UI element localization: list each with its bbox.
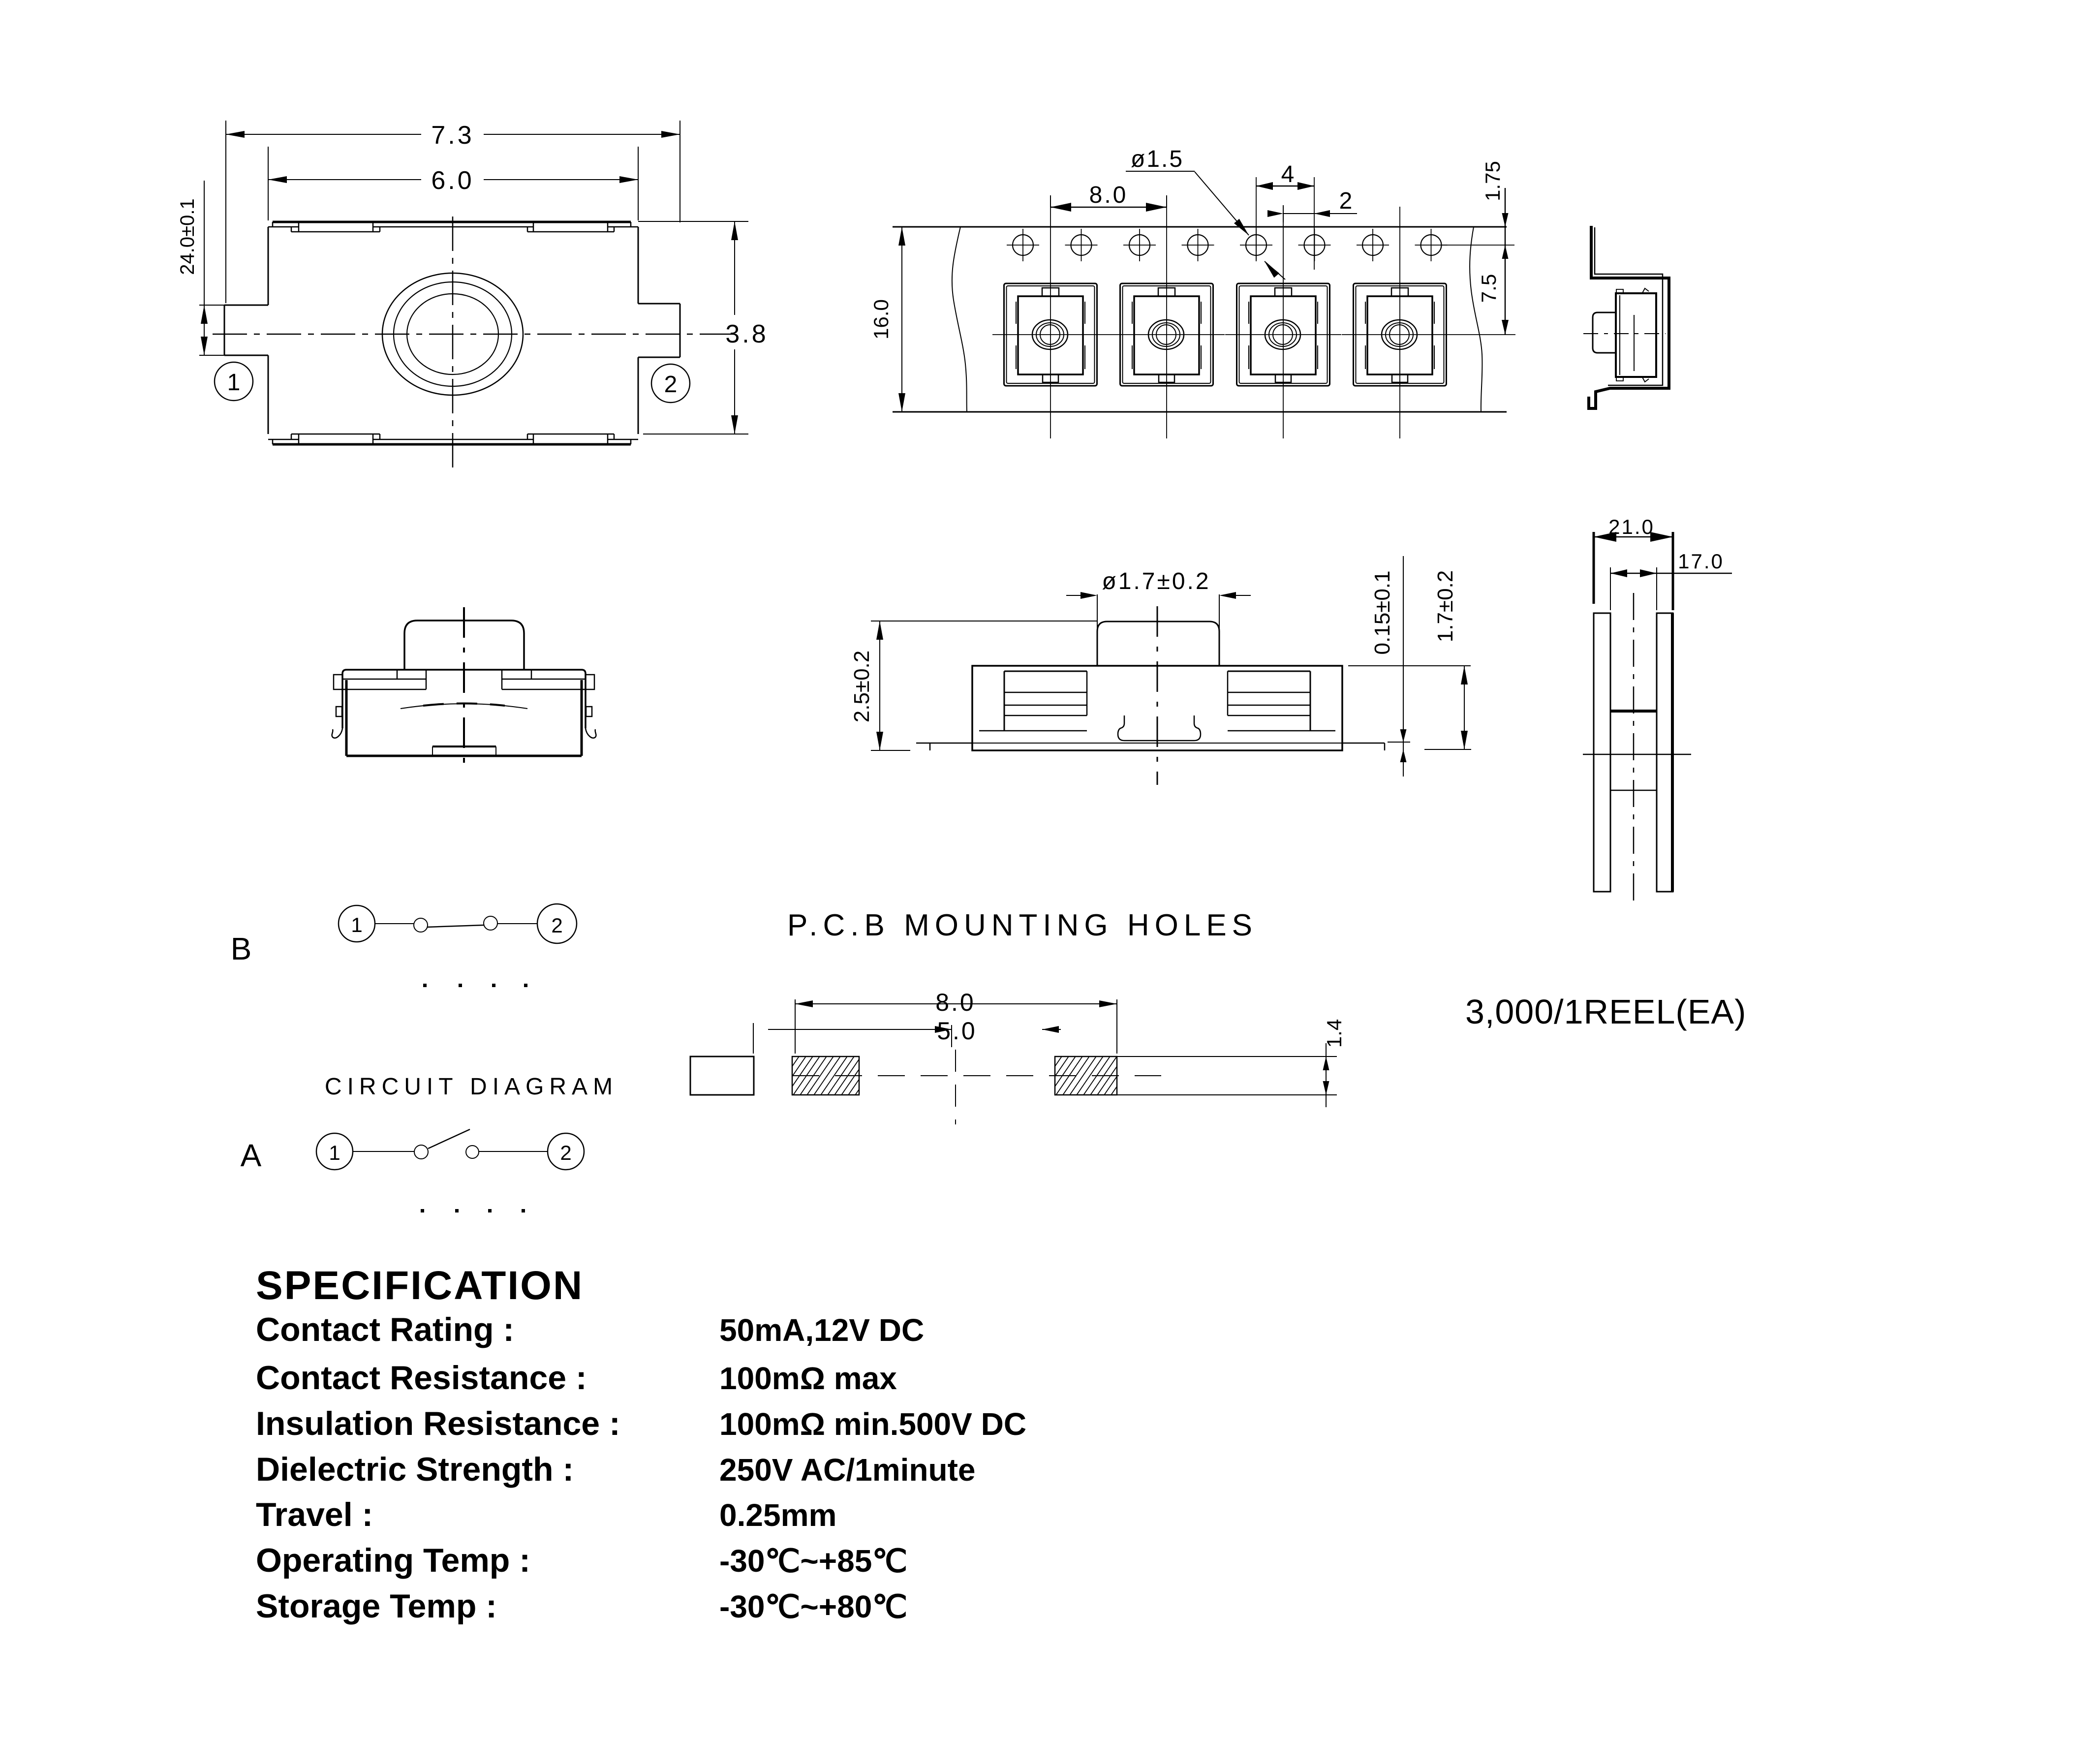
svg-text:16.0: 16.0	[869, 299, 893, 340]
svg-text:24.0±0.1: 24.0±0.1	[177, 198, 198, 275]
svg-text:1: 1	[227, 370, 241, 396]
svg-text:2: 2	[551, 914, 562, 937]
svg-text:CIRCUIT DIAGRAM: CIRCUIT DIAGRAM	[325, 1074, 618, 1100]
svg-text:2.5±0.2: 2.5±0.2	[850, 651, 874, 722]
svg-text:8.0: 8.0	[1089, 182, 1128, 208]
svg-text:0.25mm: 0.25mm	[719, 1497, 836, 1533]
svg-text:Contact Rating :: Contact Rating :	[256, 1311, 514, 1348]
svg-text:0.15±0.1: 0.15±0.1	[1370, 571, 1394, 655]
svg-text:5.0: 5.0	[937, 1017, 977, 1045]
svg-text:3.8: 3.8	[725, 320, 768, 348]
svg-text:7.5: 7.5	[1477, 274, 1500, 303]
svg-text:Operating Temp :: Operating Temp :	[256, 1542, 530, 1579]
svg-text:2: 2	[664, 372, 678, 398]
svg-text:8.0: 8.0	[935, 989, 976, 1016]
svg-text:2: 2	[1339, 188, 1353, 214]
svg-text:Travel :: Travel :	[256, 1496, 373, 1533]
svg-text:2: 2	[560, 1141, 571, 1164]
svg-text:1: 1	[329, 1141, 340, 1164]
svg-text:A: A	[241, 1138, 262, 1173]
svg-text:100mΩ min.500V DC: 100mΩ min.500V DC	[719, 1406, 1026, 1442]
svg-text:1.7±0.2: 1.7±0.2	[1433, 570, 1457, 642]
svg-text:100mΩ max: 100mΩ max	[719, 1361, 897, 1396]
svg-text:7.3: 7.3	[431, 121, 474, 150]
svg-text:3,000/1REEL(EA): 3,000/1REEL(EA)	[1465, 993, 1746, 1031]
svg-text:SPECIFICATION: SPECIFICATION	[256, 1263, 584, 1308]
svg-text:21.0: 21.0	[1608, 515, 1655, 538]
svg-text:250V AC/1minute: 250V AC/1minute	[719, 1452, 975, 1488]
svg-text:Dielectric Strength :: Dielectric Strength :	[256, 1451, 574, 1488]
svg-text:ø1.7±0.2: ø1.7±0.2	[1102, 568, 1210, 594]
svg-text:P.C.B MOUNTING HOLES: P.C.B MOUNTING HOLES	[787, 908, 1258, 942]
svg-text:50mA,12V DC: 50mA,12V DC	[719, 1312, 924, 1348]
svg-text:B: B	[231, 931, 252, 966]
svg-text:1: 1	[351, 913, 362, 936]
svg-text:Insulation Resistance :: Insulation Resistance :	[256, 1405, 620, 1442]
svg-text:ø1.5: ø1.5	[1131, 146, 1184, 172]
svg-text:-30℃~+85℃: -30℃~+85℃	[719, 1543, 907, 1579]
svg-text:Storage Temp :: Storage Temp :	[256, 1587, 497, 1625]
svg-text:6.0: 6.0	[431, 166, 474, 195]
svg-text:1.4: 1.4	[1323, 1019, 1346, 1048]
svg-text:1.75: 1.75	[1481, 161, 1504, 201]
svg-text:17.0: 17.0	[1678, 550, 1724, 573]
svg-text:4: 4	[1281, 161, 1295, 187]
svg-text:Contact Resistance :: Contact Resistance :	[256, 1359, 587, 1397]
svg-text:-30℃~+80℃: -30℃~+80℃	[719, 1589, 907, 1624]
